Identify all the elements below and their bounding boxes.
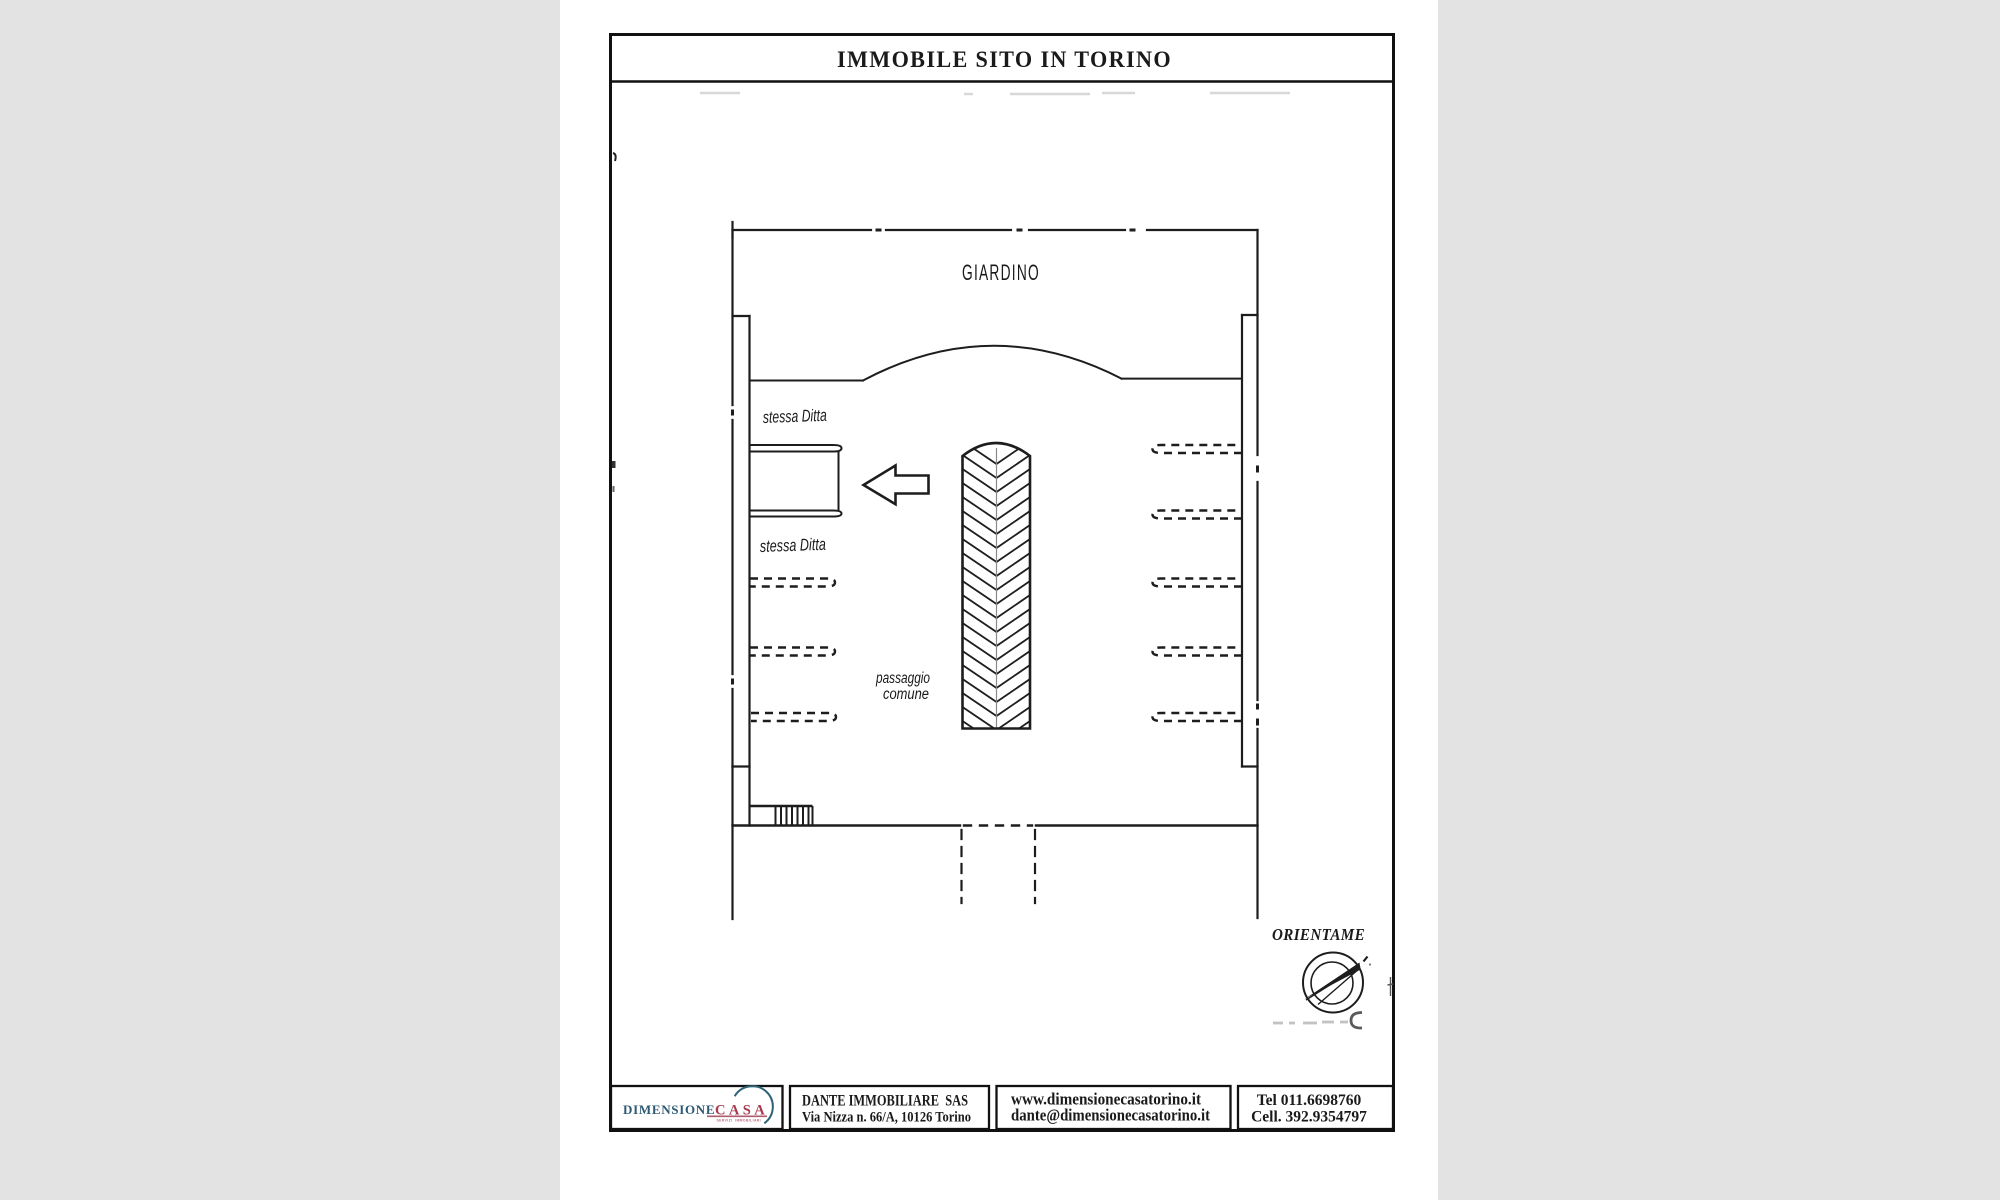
svg-text:DIMENSIONE: DIMENSIONE: [623, 1102, 715, 1117]
svg-text:DANTE IMMOBILIARE SAS: DANTE IMMOBILIARE SAS: [802, 1093, 968, 1110]
svg-text:Via Nizza n. 66/A, 10126 Torin: Via Nizza n. 66/A, 10126 Torino: [802, 1110, 971, 1126]
svg-text:Cell. 392.9354797: Cell. 392.9354797: [1251, 1109, 1367, 1126]
svg-text:IMMOBILE SITO IN TORINO: IMMOBILE SITO IN TORINO: [837, 47, 1172, 72]
svg-text:stessa Ditta: stessa Ditta: [760, 535, 827, 556]
svg-text:SERVIZI IMMOBILIARI: SERVIZI IMMOBILIARI: [717, 1118, 761, 1122]
svg-text:Tel 011.6698760: Tel 011.6698760: [1257, 1092, 1362, 1109]
svg-text:comune: comune: [883, 686, 929, 703]
svg-text:passaggio: passaggio: [875, 670, 930, 687]
svg-text:stessa Ditta: stessa Ditta: [763, 406, 828, 427]
svg-text:GIARDINO: GIARDINO: [962, 260, 1040, 285]
svg-text:dante@dimensionecasatorino.it: dante@dimensionecasatorino.it: [1011, 1106, 1210, 1125]
svg-text:ORIENTAME: ORIENTAME: [1272, 925, 1365, 944]
